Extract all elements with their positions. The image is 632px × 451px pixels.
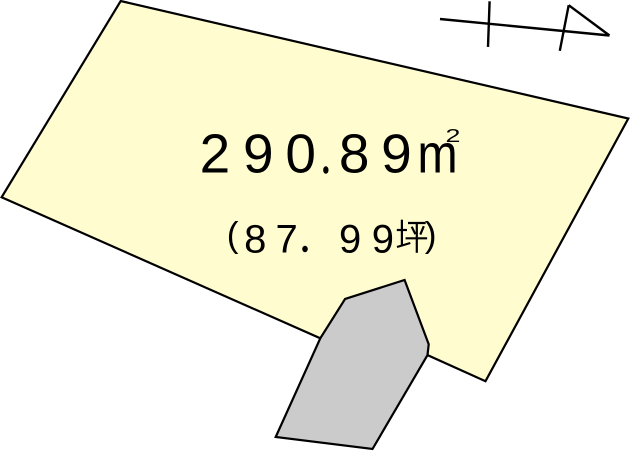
svg-text:0: 0 [285, 123, 316, 185]
svg-text:8: 8 [244, 218, 266, 262]
svg-text:9: 9 [339, 218, 361, 262]
svg-text:): ) [425, 215, 437, 255]
svg-text:2: 2 [200, 123, 231, 185]
svg-text:8: 8 [339, 123, 370, 185]
svg-text:9: 9 [243, 123, 274, 185]
svg-text:7: 7 [276, 218, 298, 262]
svg-text:9: 9 [372, 218, 394, 262]
svg-text:9: 9 [381, 123, 412, 185]
svg-text:2: 2 [446, 125, 461, 146]
svg-text:(: ( [227, 215, 239, 255]
